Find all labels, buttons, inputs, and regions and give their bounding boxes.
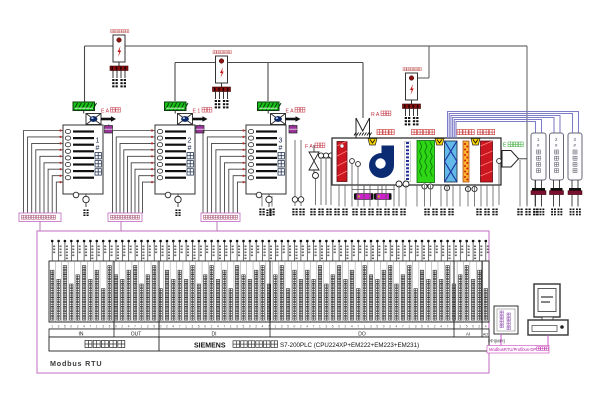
svg-text:4: 4 <box>351 325 353 329</box>
svg-text:2: 2 <box>121 325 123 329</box>
svg-text:3: 3 <box>415 325 417 329</box>
svg-text:#: # <box>188 145 192 152</box>
svg-text:1: 1 <box>51 325 53 329</box>
svg-text:5: 5 <box>198 325 200 329</box>
svg-text:3: 3 <box>281 325 283 329</box>
svg-text:3: 3 <box>370 325 372 329</box>
svg-text:7: 7 <box>447 325 449 329</box>
svg-text:DI: DI <box>212 331 217 337</box>
svg-text:7: 7 <box>357 325 359 329</box>
svg-text:4: 4 <box>128 325 130 329</box>
svg-text:7: 7 <box>89 325 91 329</box>
svg-text:2: 2 <box>478 325 480 329</box>
svg-text:F A: F A <box>305 144 313 150</box>
svg-text:E A: E A <box>101 109 110 115</box>
svg-text:1: 1 <box>364 325 366 329</box>
svg-text:5: 5 <box>466 325 468 329</box>
svg-text:2: 2 <box>300 325 302 329</box>
svg-text:1: 1 <box>319 325 321 329</box>
svg-text:4: 4 <box>172 325 174 329</box>
svg-text:7: 7 <box>134 325 136 329</box>
svg-text:3: 3 <box>459 325 461 329</box>
svg-text:0: 0 <box>160 325 162 329</box>
svg-text:7: 7 <box>268 325 270 329</box>
svg-text:4: 4 <box>217 325 219 329</box>
svg-text:7: 7 <box>223 325 225 329</box>
svg-text:2: 2 <box>389 325 391 329</box>
svg-text:1: 1 <box>274 325 276 329</box>
svg-text:2: 2 <box>345 325 347 329</box>
svg-text:E 1: E 1 <box>193 109 201 115</box>
svg-text:3: 3 <box>192 325 194 329</box>
svg-text:4: 4 <box>485 325 487 329</box>
svg-text:5: 5 <box>64 325 66 329</box>
svg-text:3: 3 <box>147 325 149 329</box>
svg-text:5: 5 <box>376 325 378 329</box>
svg-text:5: 5 <box>332 325 334 329</box>
svg-text:0: 0 <box>427 325 429 329</box>
svg-text:#: # <box>96 145 100 152</box>
svg-text:4: 4 <box>306 325 308 329</box>
svg-text:7: 7 <box>179 325 181 329</box>
svg-text:4: 4 <box>83 325 85 329</box>
svg-text:Modbus RTU: Modbus RTU <box>50 359 102 368</box>
svg-text:OUT: OUT <box>131 331 142 337</box>
svg-text:3: 3 <box>102 325 104 329</box>
svg-text:1: 1 <box>141 325 143 329</box>
svg-text:1: 1 <box>453 325 455 329</box>
svg-text:0: 0 <box>115 325 117 329</box>
svg-text:2: 2 <box>255 325 257 329</box>
svg-text:5: 5 <box>287 325 289 329</box>
svg-text:0: 0 <box>472 325 474 329</box>
svg-text:0: 0 <box>338 325 340 329</box>
svg-text:7: 7 <box>313 325 315 329</box>
svg-text:2: 2 <box>166 325 168 329</box>
svg-text:4: 4 <box>440 325 442 329</box>
svg-text:2: 2 <box>434 325 436 329</box>
svg-text:DO: DO <box>358 331 366 337</box>
svg-text:3: 3 <box>236 325 238 329</box>
svg-text:2: 2 <box>211 325 213 329</box>
svg-text:ModbusRTU/Profibus-DP: ModbusRTU/Profibus-DP <box>489 347 536 352</box>
svg-text:AI: AI <box>466 331 470 336</box>
svg-text:0: 0 <box>70 325 72 329</box>
svg-text:4: 4 <box>396 325 398 329</box>
svg-text:0: 0 <box>294 325 296 329</box>
svg-text:SIEMENS: SIEMENS <box>194 343 226 350</box>
svg-text:1: 1 <box>96 138 100 145</box>
svg-text:PPI(MPI): PPI(MPI) <box>488 339 506 344</box>
svg-text:3: 3 <box>58 325 60 329</box>
svg-text:1: 1 <box>230 325 232 329</box>
svg-text:5: 5 <box>421 325 423 329</box>
svg-text:3: 3 <box>325 325 327 329</box>
svg-text:1: 1 <box>408 325 410 329</box>
svg-text:2: 2 <box>77 325 79 329</box>
svg-text:S7-200PLC (CPU224XP+EM222+EM22: S7-200PLC (CPU224XP+EM222+EM223+EM231) <box>280 342 419 349</box>
svg-text:7: 7 <box>402 325 404 329</box>
svg-text:E A: E A <box>286 109 295 115</box>
svg-text:5: 5 <box>243 325 245 329</box>
svg-text:IN: IN <box>79 331 84 337</box>
svg-text:2: 2 <box>188 138 192 145</box>
svg-text:0: 0 <box>249 325 251 329</box>
svg-text:#: # <box>279 145 283 152</box>
svg-text:5: 5 <box>153 325 155 329</box>
svg-text:1: 1 <box>185 325 187 329</box>
svg-text:4: 4 <box>262 325 264 329</box>
svg-text:AO: AO <box>483 332 488 336</box>
svg-text:0: 0 <box>204 325 206 329</box>
svg-text:R A: R A <box>371 112 380 118</box>
svg-text:3: 3 <box>279 138 283 145</box>
svg-text:0: 0 <box>383 325 385 329</box>
svg-text:5: 5 <box>109 325 111 329</box>
svg-text:1: 1 <box>96 325 98 329</box>
svg-text:E: E <box>503 143 507 149</box>
